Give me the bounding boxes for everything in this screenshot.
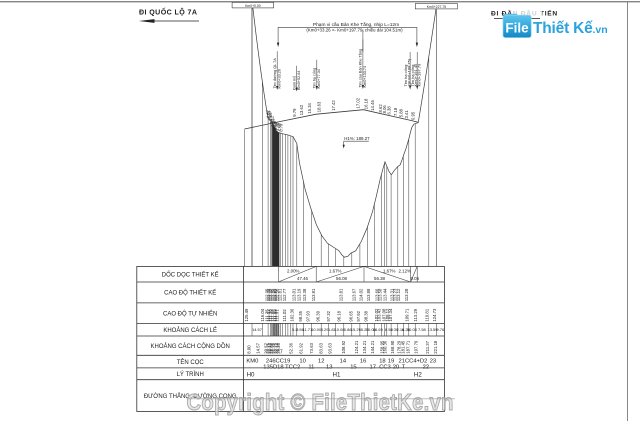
svg-text:13: 13: [326, 365, 332, 371]
svg-text:168.90: 168.90: [390, 340, 395, 354]
svg-text:124.21: 124.21: [354, 340, 359, 354]
svg-text:CAO ĐỘ THIẾT KẾ: CAO ĐỘ THIẾT KẾ: [164, 290, 216, 297]
svg-text:116.04: 116.04: [260, 308, 265, 321]
svg-text:14.57: 14.57: [255, 342, 260, 353]
svg-text:12: 12: [318, 359, 324, 365]
svg-text:21CC4+D2: 21CC4+D2: [399, 359, 428, 365]
svg-text:.vn: .vn: [593, 24, 608, 36]
svg-text:15: 15: [350, 365, 356, 371]
svg-text:10: 10: [299, 359, 305, 365]
svg-text:KHOẢNG CÁCH CỘNG DỒN: KHOẢNG CÁCH CỘNG DỒN: [151, 343, 230, 350]
svg-text:16: 16: [360, 359, 366, 365]
svg-text:102.36: 102.36: [290, 308, 295, 322]
svg-text:7: 7: [280, 350, 283, 356]
svg-text:22: 22: [423, 365, 429, 371]
svg-text:DỐC DỌC THIẾT KẾ: DỐC DỌC THIẾT KẾ: [162, 271, 219, 278]
svg-text:3.41: 3.41: [404, 110, 409, 119]
svg-text:113.44: 113.44: [382, 288, 387, 301]
svg-text:113.28: 113.28: [404, 288, 409, 301]
svg-text:7.58: 7.58: [418, 327, 427, 332]
svg-text:19: 19: [388, 359, 394, 365]
svg-text:97.32: 97.32: [326, 310, 331, 321]
svg-text:8.00: 8.00: [246, 345, 251, 354]
svg-text:T: T: [402, 365, 406, 371]
svg-text:17: 17: [370, 365, 376, 371]
svg-text:246CC19: 246CC19: [266, 359, 291, 365]
svg-text:107.34: 107.34: [388, 308, 393, 322]
svg-text:(Km0+33.26 <- Km0+197.79; chiề: (Km0+33.26 <- Km0+197.79; chiều dài 104.…: [306, 27, 403, 32]
svg-text:10.08: 10.08: [407, 327, 418, 332]
svg-text:113.81: 113.81: [339, 288, 344, 301]
svg-text:23: 23: [430, 359, 436, 365]
svg-text:61.92: 61.92: [299, 342, 304, 353]
svg-text:Thiết Kế: Thiết Kế: [533, 20, 593, 37]
svg-text:144.21: 144.21: [370, 340, 375, 354]
svg-text:KHOẢNG CÁCH LẺ: KHOẢNG CÁCH LẺ: [163, 327, 217, 334]
svg-text:114.02: 114.02: [358, 288, 363, 301]
svg-text:H0: H0: [247, 372, 255, 379]
svg-text:211.37: 211.37: [425, 340, 430, 353]
svg-text:113.19: 113.19: [296, 288, 301, 301]
svg-text:H1: H1: [333, 372, 341, 379]
svg-text:221.18: 221.18: [433, 340, 438, 354]
svg-text:113.29: 113.29: [413, 308, 418, 321]
svg-text:96.65: 96.65: [349, 310, 354, 321]
svg-text:109.71: 109.71: [404, 308, 409, 322]
svg-text:ĐI QUỐC LỘ 7A: ĐI QUỐC LỘ 7A: [139, 6, 197, 16]
svg-text:11: 11: [308, 365, 314, 371]
svg-text:98.35: 98.35: [298, 310, 303, 321]
svg-text:97.92: 97.92: [356, 310, 361, 321]
svg-text:113.38: 113.38: [302, 288, 307, 301]
svg-text:Tim đường QL 7A: Tim đường QL 7A: [273, 58, 277, 89]
svg-text:119.81: 119.81: [424, 308, 429, 321]
svg-text:111.02: 111.02: [282, 309, 287, 322]
svg-text:KM0: KM0: [246, 359, 258, 365]
svg-text:0.79: 0.79: [279, 123, 284, 132]
svg-text:135D18 TCC2: 135D18 TCC2: [263, 365, 300, 371]
svg-text:CC3: CC3: [379, 365, 391, 371]
svg-text:14: 14: [340, 359, 347, 365]
svg-text:16.18: 16.18: [363, 98, 368, 109]
svg-text:9.79: 9.79: [292, 108, 297, 117]
svg-text:73.63: 73.63: [309, 342, 314, 353]
svg-text:TÊN CỌC: TÊN CỌC: [177, 358, 205, 366]
svg-text:18: 18: [379, 359, 385, 365]
svg-text:Km0+77.34: Km0+77.34: [317, 69, 321, 89]
svg-text:13.62: 13.62: [299, 104, 304, 115]
svg-text:CAO ĐỘ TỰ NHIÊN: CAO ĐỘ TỰ NHIÊN: [163, 309, 217, 317]
svg-text:Km0+52.64: Km0+52.64: [297, 70, 301, 90]
svg-text:134.21: 134.21: [362, 340, 367, 354]
svg-text:LÝ TRÌNH: LÝ TRÌNH: [177, 371, 204, 378]
svg-text:5.88: 5.88: [399, 108, 404, 117]
svg-text:187.71: 187.71: [406, 340, 411, 354]
svg-text:7.18: 7.18: [393, 107, 398, 116]
svg-text:113.88: 113.88: [366, 288, 371, 301]
svg-text:56.08: 56.08: [336, 276, 348, 281]
svg-text:17.42: 17.42: [331, 100, 336, 111]
svg-text:Copyright © FileThietKe.vn: Copyright © FileThietKe.vn: [187, 389, 454, 416]
svg-text:15.34: 15.34: [307, 102, 312, 113]
svg-text:14.69: 14.69: [373, 327, 384, 332]
svg-text:Km0+227.75: Km0+227.75: [427, 5, 446, 9]
svg-text:125.49: 125.49: [244, 308, 249, 322]
svg-text:96.39: 96.39: [316, 310, 321, 321]
svg-text:56.38: 56.38: [374, 276, 386, 281]
svg-text:Tim cầu Bản Khe Tằng: Tim cầu Bản Khe Tằng: [358, 49, 363, 88]
svg-text:1.67%: 1.67%: [383, 269, 396, 274]
svg-text:2.12%: 2.12%: [399, 269, 412, 274]
svg-text:52.36: 52.36: [288, 342, 293, 353]
svg-text:111.91: 111.91: [275, 309, 280, 322]
svg-text:1.67%: 1.67%: [329, 269, 342, 274]
svg-text:18.63: 18.63: [317, 101, 322, 112]
svg-text:0.95: 0.95: [411, 111, 416, 120]
svg-text:113.67: 113.67: [352, 288, 357, 301]
svg-text:160.36: 160.36: [383, 340, 388, 354]
svg-text:H2: H2: [414, 372, 422, 379]
svg-text:96.18: 96.18: [336, 310, 341, 321]
svg-text:17.02: 17.02: [355, 97, 360, 108]
svg-text:Km0+133.74: Km0+133.74: [363, 66, 367, 88]
svg-text:14.57: 14.57: [252, 327, 263, 332]
svg-text:98.38: 98.38: [364, 310, 369, 321]
svg-text:2.00%: 2.00%: [287, 269, 300, 274]
svg-text:113.81: 113.81: [311, 288, 316, 301]
svg-text:197.79: 197.79: [414, 340, 419, 354]
svg-text:Tim hạ cống: Tim hạ cống: [313, 68, 317, 89]
svg-text:Km0+33.26: Km0+33.26: [277, 69, 281, 89]
svg-text:124.73: 124.73: [432, 308, 437, 322]
svg-text:97.93: 97.93: [305, 310, 310, 321]
svg-text:Km0+0.00: Km0+0.00: [245, 4, 261, 8]
svg-text:83.63: 83.63: [319, 342, 324, 353]
svg-text:20: 20: [393, 365, 399, 371]
svg-text:113.12: 113.12: [396, 288, 401, 301]
svg-text:File: File: [505, 21, 529, 36]
svg-text:112.77: 112.77: [282, 288, 287, 301]
svg-text:14.46: 14.46: [370, 100, 375, 111]
svg-text:6.38: 6.38: [387, 106, 392, 115]
svg-text:9.05: 9.05: [411, 276, 420, 281]
svg-text:93.63: 93.63: [328, 342, 333, 353]
svg-text:47.46: 47.46: [297, 276, 309, 281]
svg-text:9.76: 9.76: [436, 327, 445, 332]
svg-text:H1%: 189.27: H1%: 189.27: [344, 136, 370, 141]
svg-text:108.92: 108.92: [341, 340, 346, 354]
